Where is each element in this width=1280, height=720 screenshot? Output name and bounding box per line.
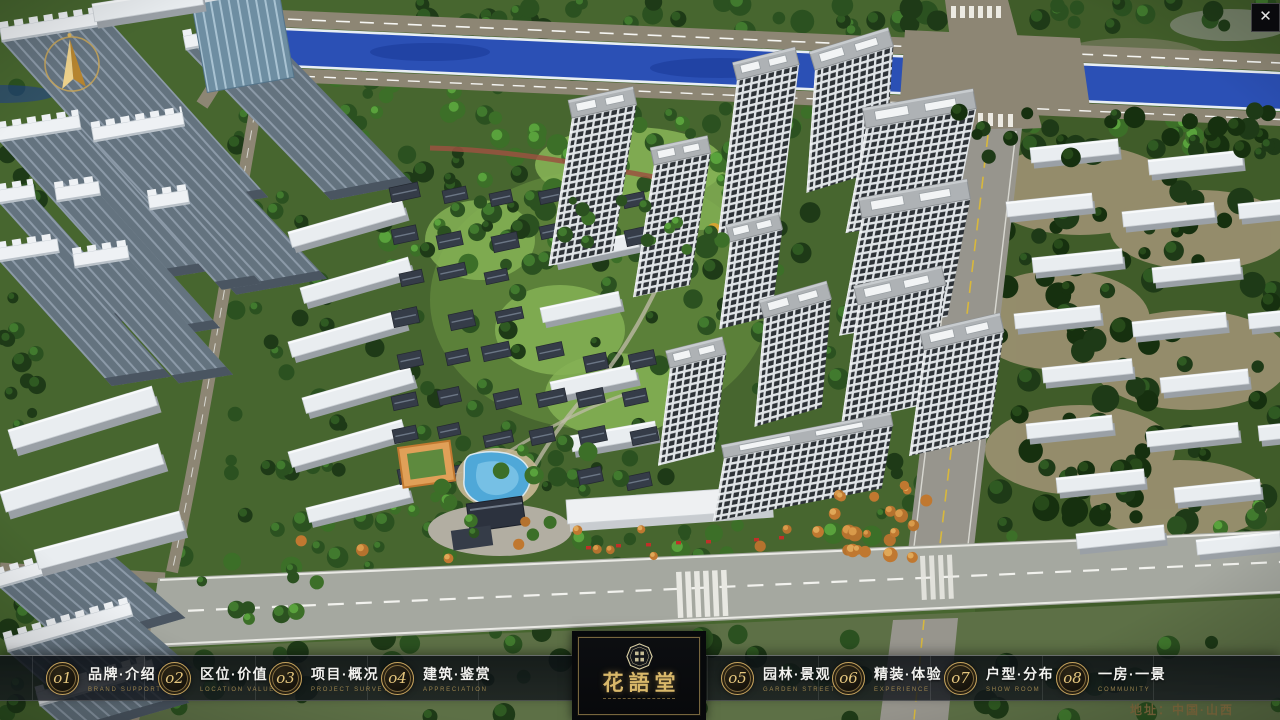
nav-number-badge: o3: [269, 662, 302, 695]
nav-subtitle: COMMUNITY: [1098, 687, 1166, 693]
nav-item-floorplan[interactable]: o7 户型·分布 SHOW ROOM: [930, 656, 1042, 700]
project-logo: 花語堂: [578, 637, 700, 715]
close-button[interactable]: ✕: [1251, 3, 1280, 32]
project-address: 地址：中国·山西: [1130, 701, 1234, 718]
nav-item-location[interactable]: o2 区位·价值 LOCATION VALUE: [144, 656, 255, 700]
nav-title: 建筑·鉴赏: [423, 664, 491, 684]
nav-item-architecture[interactable]: o4 建筑·鉴赏 APPRECIATION: [367, 656, 478, 700]
nav-number-badge: o1: [46, 662, 79, 695]
nav-item-interior[interactable]: o6 精装·体验 EXPERIENCE: [818, 656, 930, 700]
glass-office-tower: [190, 0, 294, 92]
nav-subtitle: APPRECIATION: [423, 687, 491, 693]
logo-subtext-rule: [603, 698, 675, 699]
aerial-masterplan-render: [0, 0, 1280, 720]
nav-number-badge: o2: [158, 662, 191, 695]
presentation-window: { "window": { "close_button": "✕" }, "pr…: [0, 0, 1280, 720]
nav-number-badge: o6: [832, 662, 865, 695]
nav-item-project[interactable]: o3 项目·概况 PROJECT SURVEY: [255, 656, 367, 700]
nav-divider: [1153, 656, 1154, 700]
nav-number-badge: o5: [721, 662, 754, 695]
nav-number-badge: o8: [1056, 662, 1089, 695]
nav-title: 一房·一景: [1098, 664, 1166, 684]
nav-item-brand[interactable]: o1 品牌·介绍 BRAND SUPPORT: [32, 656, 144, 700]
nav-item-views[interactable]: o8 一房·一景 COMMUNITY: [1042, 656, 1153, 700]
nav-item-garden[interactable]: o5 园林·景观 GARDEN STREET: [707, 656, 818, 700]
nav-number-badge: o7: [944, 662, 977, 695]
seal-emblem-icon: [626, 643, 653, 670]
nav-number-badge: o4: [381, 662, 414, 695]
nav-divider: [478, 656, 479, 700]
project-name: 花語堂: [598, 672, 681, 693]
